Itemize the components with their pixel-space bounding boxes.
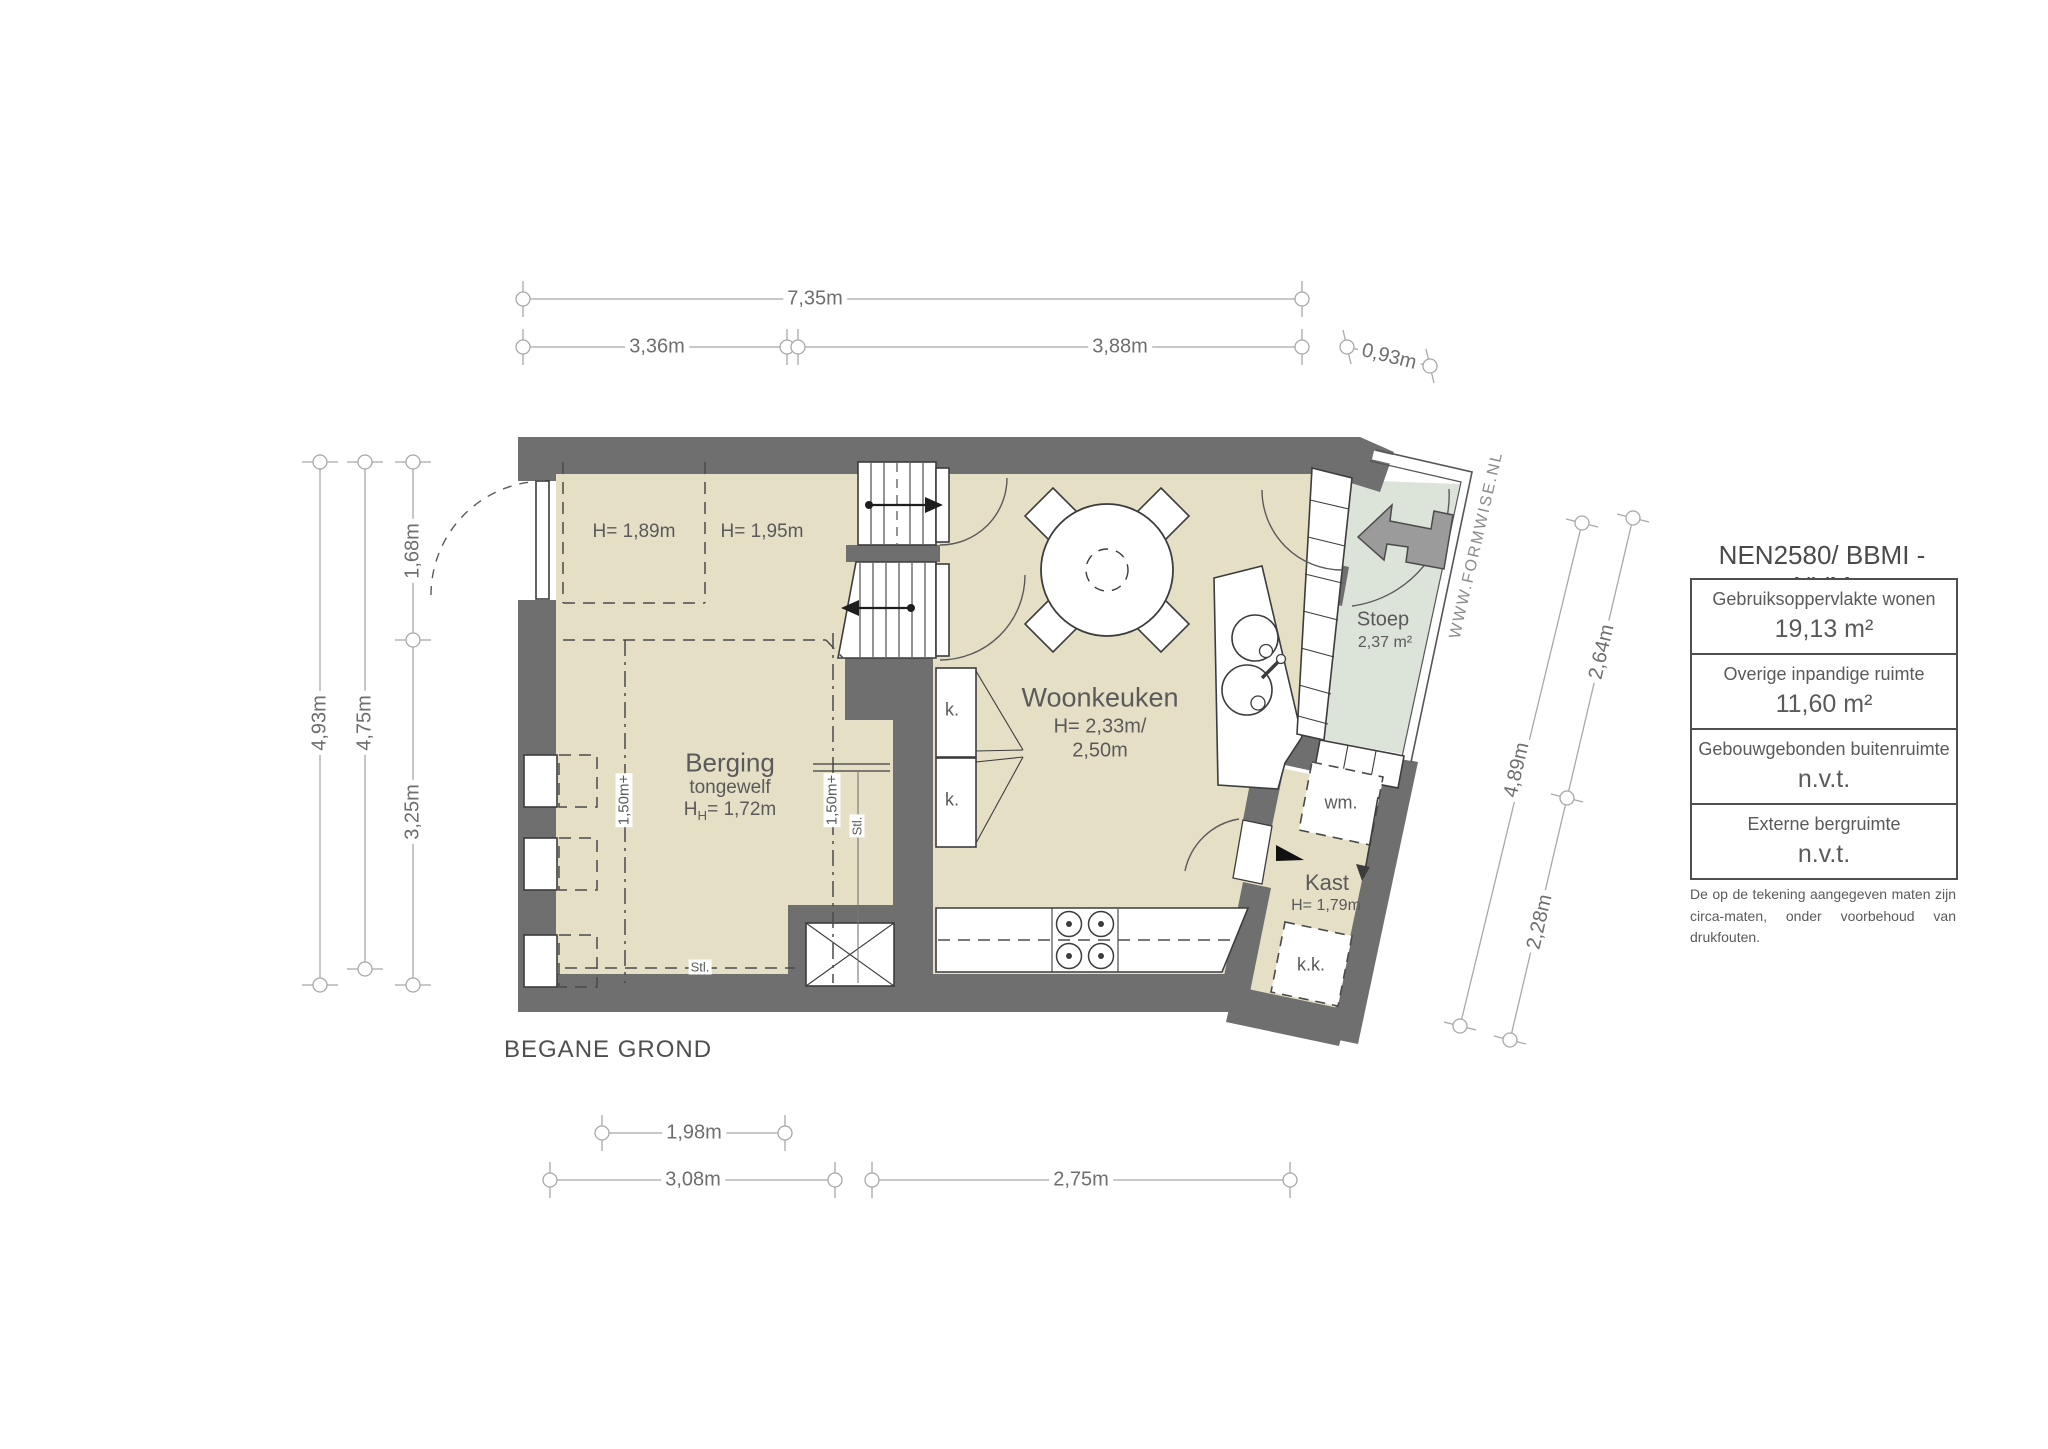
legend-row-label: Gebruiksoppervlakte wonen	[1692, 580, 1956, 610]
berging-height-label: HH= 1,72m	[684, 799, 777, 823]
legend-row: Overige inpandige ruimte 11,60 m²	[1692, 655, 1956, 730]
plan-title: BEGANE GROND	[504, 1036, 712, 1064]
room-label-woonkeuken: Woonkeuken	[1021, 683, 1178, 714]
dim-top-total: 7,35m	[783, 288, 847, 311]
dim-left-bottom: 3,25m	[402, 780, 425, 844]
room-label-berging: Berging	[685, 748, 775, 779]
legend-row-label: Overige inpandige ruimte	[1692, 655, 1956, 685]
legend-footnote: De op de tekening aangegeven maten zijn …	[1690, 884, 1956, 949]
legend-row-value: 11,60 m²	[1692, 685, 1956, 719]
cabinet-1-label: k.	[945, 700, 959, 721]
level-line-1-label: 1,50m+	[616, 773, 633, 827]
woonkeuken-height-2: 2,50m	[1072, 740, 1128, 763]
woonkeuken-height-1: H= 2,33m/	[1054, 716, 1147, 739]
stair-stringer-down	[936, 564, 949, 656]
room-label-kast: Kast	[1305, 870, 1349, 896]
dim-left-outer: 4,93m	[309, 691, 332, 755]
stl-vertical-label: Stl.	[850, 815, 865, 838]
legend-row-value: n.v.t.	[1692, 760, 1956, 794]
dim-left-inner: 4,75m	[354, 691, 377, 755]
fridge-label: k.k.	[1297, 955, 1325, 976]
wall-niche-3	[524, 935, 557, 987]
left-wall-top	[518, 437, 556, 481]
legend-table: Gebruiksoppervlakte wonen 19,13 m² Overi…	[1690, 578, 1958, 880]
berging-vault-label: tongewelf	[689, 777, 770, 799]
legend-row: Gebruiksoppervlakte wonen 19,13 m²	[1692, 580, 1956, 655]
dim-top-left: 3,36m	[625, 336, 689, 359]
room-label-stoep: Stoep	[1357, 609, 1409, 632]
legend-row: Gebouwgebonden buitenruimte n.v.t.	[1692, 730, 1956, 805]
level-line-2-label: 1,50m+	[824, 773, 841, 827]
legend-row-label: Externe bergruimte	[1692, 805, 1956, 835]
dining-set	[1025, 488, 1189, 652]
exterior-door-leaf	[536, 481, 549, 599]
dim-top-right: 3,88m	[1088, 336, 1152, 359]
kast-height-label: H= 1,79m	[1291, 897, 1361, 915]
wall-niche-1	[524, 755, 557, 807]
height-zone-left-label: H= 1,89m	[593, 521, 676, 543]
dim-bottom-right: 2,75m	[1049, 1169, 1113, 1192]
legend-row-value: 19,13 m²	[1692, 610, 1956, 644]
stl-horizontal-label: Stl.	[689, 960, 712, 975]
stoep-area-label: 2,37 m²	[1358, 634, 1412, 652]
round-table	[1041, 504, 1173, 636]
legend-row-value: n.v.t.	[1692, 835, 1956, 869]
dim-bottom-inner: 1,98m	[662, 1122, 726, 1145]
wall-niche-2	[524, 838, 557, 890]
legend-row-label: Gebouwgebonden buitenruimte	[1692, 730, 1956, 760]
stair-separator-wall	[846, 545, 940, 562]
dim-left-top: 1,68m	[402, 519, 425, 583]
cabinet-2-label: k.	[945, 790, 959, 811]
faucet-base	[1277, 655, 1286, 664]
washing-machine-label: wm.	[1325, 793, 1358, 814]
legend-row: Externe bergruimte n.v.t.	[1692, 805, 1956, 878]
floorplan-page: 7,35m 3,36m 3,88m 0,93m 4,93m 4,75m 1,68…	[0, 0, 2048, 1449]
height-zone-right-label: H= 1,95m	[721, 521, 804, 543]
dim-bottom-left: 3,08m	[661, 1169, 725, 1192]
